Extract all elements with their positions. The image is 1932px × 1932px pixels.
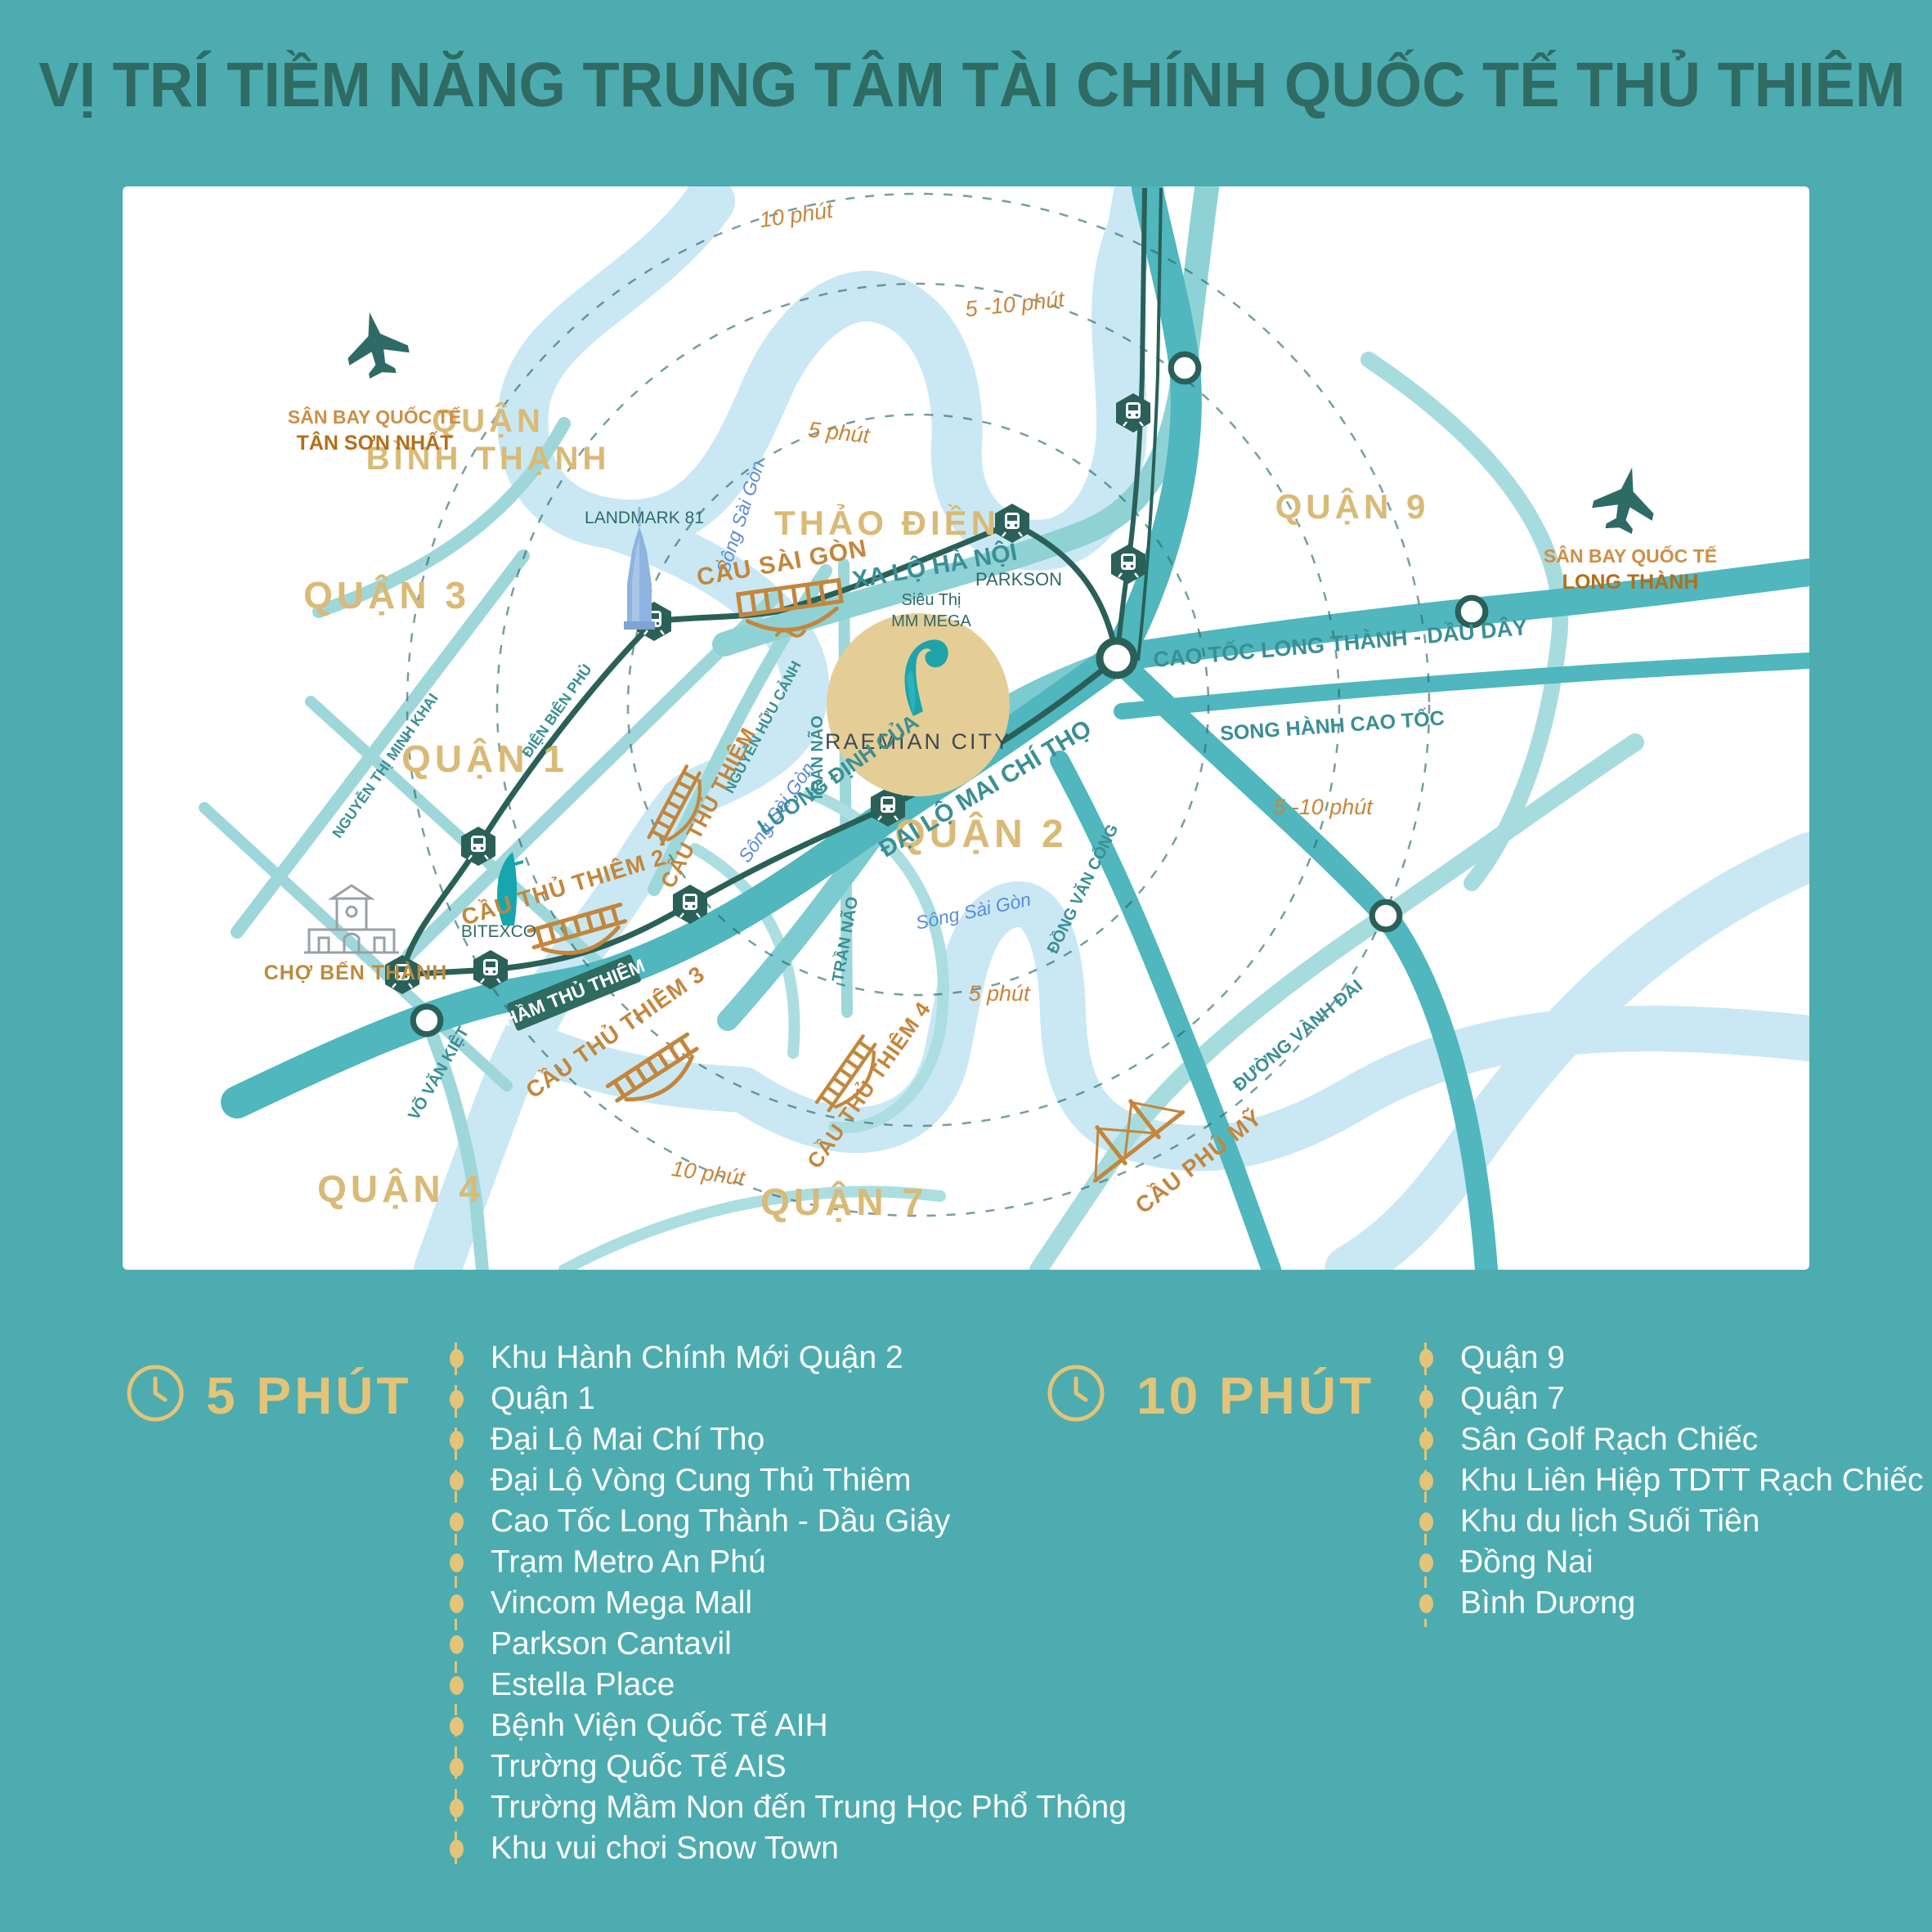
- list-item: Estella Place: [456, 1665, 1127, 1706]
- list-item: Trường Mầm Non đến Trung Học Phổ Thông: [456, 1787, 1127, 1828]
- ring-label: 10 phút: [758, 198, 836, 232]
- interchange-node: [413, 1006, 441, 1034]
- clock-icon-5: [123, 1360, 188, 1430]
- airport-tsn-label: TÂN SƠN NHẤT: [297, 430, 453, 455]
- list-item-label: Khu vui chơi Snow Town: [491, 1831, 839, 1867]
- list-item: Khu Liên Hiệp TDTT Rạch Chiếc: [1426, 1460, 1924, 1501]
- airplane-icon: [1589, 461, 1662, 537]
- ten-minutes-list: Quận 9 Quận 7 Sân Golf Rạch Chiếc Khu Li…: [1426, 1338, 1924, 1624]
- interchange-node: [1171, 354, 1199, 382]
- district-label-q4: QUẬN 4: [317, 1168, 484, 1210]
- landmark81-label: LANDMARK 81: [585, 509, 704, 527]
- list-item-label: Đại Lộ Vòng Cung Thủ Thiêm: [491, 1463, 912, 1499]
- list-item: Quận 1: [456, 1378, 1127, 1419]
- road-label-trannao: TRẦN NÃO: [808, 715, 827, 802]
- list-item-label: Khu Hành Chính Mới Quận 2: [491, 1340, 903, 1376]
- list-item: Đại Lộ Vòng Cung Thủ Thiêm: [456, 1460, 1127, 1501]
- road-label-songhanh: SONG HÀNH CAO TỐC: [1219, 705, 1445, 745]
- list-item-label: Parkson Cantavil: [491, 1626, 732, 1662]
- list-item-label: Vincom Mega Mall: [491, 1585, 752, 1621]
- airport-intl-label: SÂN BAY QUỐC TẾ: [288, 406, 461, 428]
- list-item: Quận 9: [1426, 1338, 1924, 1378]
- list-item-label: Trường Quốc Tế AIS: [491, 1749, 787, 1785]
- list-item-label: Khu du lịch Suối Tiên: [1460, 1504, 1759, 1540]
- road-label-trannao-2: TRẦN NÃO: [828, 895, 862, 984]
- list-item: Parkson Cantavil: [456, 1624, 1127, 1665]
- list-item-label: Khu Liên Hiệp TDTT Rạch Chiếc: [1460, 1463, 1924, 1499]
- list-item: Sân Golf Rạch Chiếc: [1426, 1419, 1924, 1460]
- poster: VỊ TRÍ TIỀM NĂNG TRUNG TÂM TÀI CHÍNH QUỐ…: [0, 0, 1932, 1932]
- ben-thanh-label: CHỢ BẾN THÀNH: [264, 961, 448, 984]
- list-item-label: Bình Dương: [1460, 1585, 1635, 1621]
- list-item-label: Sân Golf Rạch Chiếc: [1460, 1422, 1758, 1458]
- sieu-thi-label: Siêu Thị: [901, 591, 961, 609]
- list-item: Đại Lộ Mai Chí Thọ: [456, 1419, 1127, 1460]
- list-item-label: Quận 9: [1460, 1340, 1565, 1376]
- interchange-node: [1100, 641, 1134, 675]
- list-item: Trường Quốc Tế AIS: [456, 1746, 1127, 1787]
- list-item: Khu vui chơi Snow Town: [456, 1828, 1127, 1869]
- page-title: VỊ TRÍ TIỀM NĂNG TRUNG TÂM TÀI CHÍNH QUỐ…: [38, 49, 1893, 122]
- district-label-q9: QUẬN 9: [1275, 486, 1430, 526]
- list-item: Cao Tốc Long Thành - Dầu Giây: [456, 1501, 1127, 1542]
- list-item-label: Cao Tốc Long Thành - Dầu Giây: [491, 1504, 950, 1540]
- list-item: Trạm Metro An Phú: [456, 1542, 1127, 1583]
- ring-label: 5 phút: [968, 981, 1031, 1006]
- list-item: Bình Dương: [1426, 1583, 1924, 1624]
- ring-label: 10 phút: [670, 1156, 748, 1190]
- district-label-q3: QUẬN 3: [303, 574, 470, 616]
- five-minutes-header: 5 PHÚT: [206, 1365, 412, 1426]
- list-item-label: Quận 1: [491, 1381, 595, 1417]
- list-item: Bệnh Viện Quốc Tế AIH: [456, 1706, 1127, 1746]
- list-item-label: Đại Lộ Mai Chí Thọ: [491, 1422, 764, 1458]
- interchange-node: [1372, 902, 1400, 930]
- list-item-label: Trường Mầm Non đến Trung Học Phổ Thông: [491, 1790, 1127, 1826]
- list-item-label: Quận 7: [1460, 1381, 1565, 1417]
- airport-intl-label-2: SÂN BAY QUỐC TẾ: [1544, 545, 1717, 567]
- list-item-label: Đồng Nai: [1460, 1544, 1594, 1580]
- airplane-icon: [339, 306, 413, 382]
- list-item-label: Estella Place: [491, 1667, 675, 1703]
- ring-label: 5 -10 phút: [1273, 795, 1374, 819]
- list-item-label: Bệnh Viện Quốc Tế AIH: [491, 1708, 828, 1744]
- list-item: Khu du lịch Suối Tiên: [1426, 1501, 1924, 1542]
- bitexco-label: BITEXCO: [461, 922, 536, 941]
- airport-lt-label: LONG THÀNH: [1562, 570, 1699, 594]
- map-panel: RAEMIAN CITY HẦM THỦ THIÊM: [123, 186, 1809, 1270]
- list-item: Khu Hành Chính Mới Quận 2: [456, 1338, 1127, 1378]
- list-item-label: Trạm Metro An Phú: [491, 1544, 766, 1580]
- ten-minutes-header: 10 PHÚT: [1136, 1365, 1374, 1426]
- list-item: Quận 7: [1426, 1378, 1924, 1419]
- mm-mega-label: MM MEGA: [891, 612, 971, 630]
- parkson-label: PARKSON: [975, 569, 1062, 589]
- ring-label: 5 -10 phút: [964, 287, 1067, 322]
- district-label-q7: QUẬN 7: [760, 1181, 927, 1223]
- list-item: Đồng Nai: [1426, 1542, 1924, 1583]
- five-minutes-list: Khu Hành Chính Mới Quận 2 Quận 1 Đại Lộ …: [456, 1338, 1127, 1869]
- clock-icon-10: [1043, 1360, 1109, 1430]
- list-item: Vincom Mega Mall: [456, 1583, 1127, 1624]
- map-canvas: RAEMIAN CITY HẦM THỦ THIÊM: [123, 186, 1809, 1270]
- district-label-thao-dien: THẢO ĐIỀN: [774, 503, 1000, 542]
- ring-label: 5 phút: [807, 417, 872, 448]
